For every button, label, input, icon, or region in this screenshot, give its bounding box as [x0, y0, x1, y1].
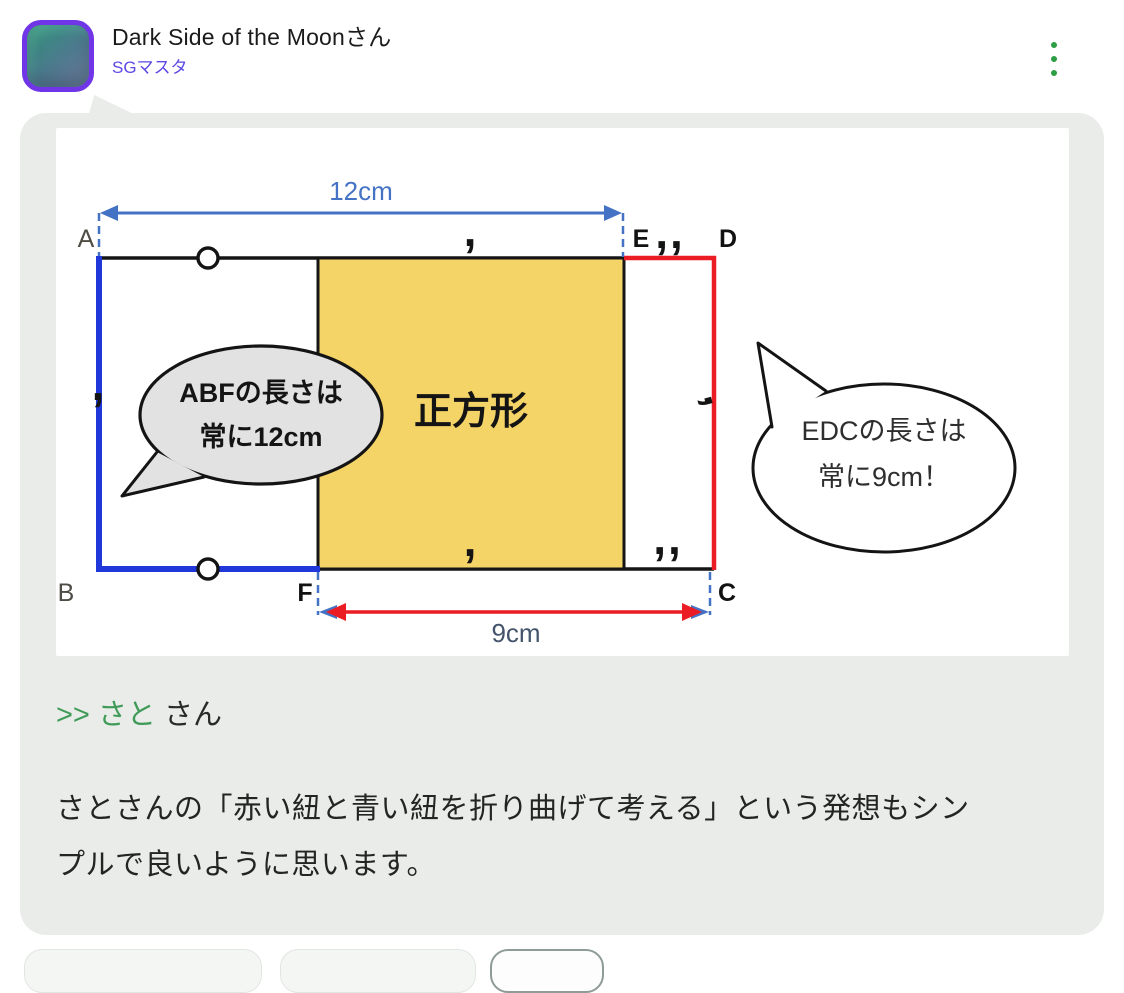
mark-single-left: ,	[92, 358, 105, 410]
kebab-menu-icon[interactable]	[1044, 42, 1064, 76]
avatar[interactable]	[22, 20, 94, 92]
action-button-1[interactable]	[24, 949, 262, 993]
point-label-a: A	[78, 225, 95, 253]
mark-single-top: ,	[464, 204, 477, 256]
point-label-d: D	[719, 225, 737, 253]
point-label-b: B	[58, 579, 75, 607]
speech-bubble-right: EDCの長さは 常に9cm！	[753, 343, 1015, 552]
mark-double-top: ,,	[655, 206, 685, 258]
mark-single-right: ,	[694, 385, 748, 411]
user-rank-badge: SGマスタ	[112, 57, 188, 79]
dim-bottom-label: 9cm	[491, 618, 540, 648]
point-label-f: F	[297, 579, 312, 607]
bubble-left-line2: 常に12cm	[199, 422, 322, 452]
mark-single-bottom: ,	[464, 514, 477, 566]
action-button-2[interactable]	[280, 949, 476, 993]
action-button-3[interactable]	[490, 949, 604, 993]
dim-top-label: 12cm	[329, 176, 393, 206]
diagram-image[interactable]: 正方形 12cm	[56, 128, 1069, 656]
bubble-right-line2: 常に9cm！	[818, 462, 950, 492]
dimension-bottom-9cm: 9cm	[318, 572, 710, 648]
bubble-left-line1: ABFの長さは	[179, 378, 343, 408]
reply-user-link[interactable]: >> さと	[56, 699, 156, 731]
comment-card: 正方形 12cm	[20, 113, 1104, 935]
mark-double-bottom: ,,	[653, 512, 683, 564]
dimension-top-12cm: 12cm	[99, 176, 623, 257]
reply-reference: >> さと さん	[56, 695, 222, 735]
square-label: 正方形	[414, 391, 528, 433]
point-label-c: C	[718, 579, 736, 607]
reply-honorific: さん	[164, 699, 222, 731]
comment-body: さとさんの「赤い紐と青い紐を折り曲げて考える」という発想もシン プルで良いように…	[56, 781, 1066, 893]
point-label-e: E	[633, 225, 650, 253]
comment-body-line1: さとさんの「赤い紐と青い紐を折り曲げて考える」という発想もシン	[56, 781, 1066, 837]
username: Dark Side of the Moonさん	[112, 23, 391, 51]
comment-body-line2: プルで良いように思います。	[56, 837, 1066, 893]
bubble-right-line1: EDCの長さは	[801, 416, 966, 446]
